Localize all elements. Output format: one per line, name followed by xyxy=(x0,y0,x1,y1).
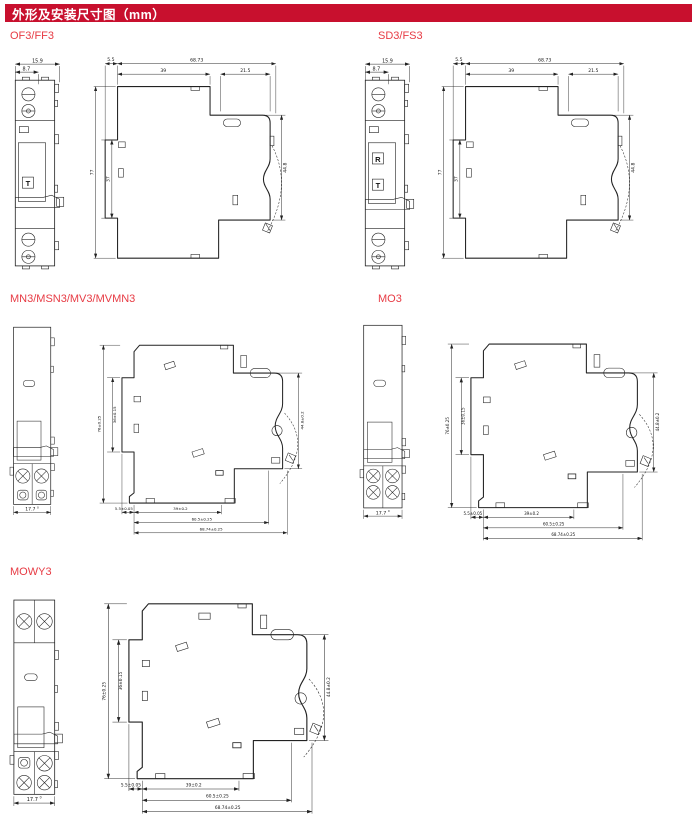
dim-mid-depth: 60.5±0.25 xyxy=(206,794,229,800)
front-lever xyxy=(364,448,410,459)
front-terminals-top xyxy=(14,600,55,643)
section-title-mo3: MO3 xyxy=(378,293,402,305)
front-screws-top xyxy=(372,88,385,118)
figure-sd3fs3: SD3/FS3 15.9 8.7 R T xyxy=(360,30,697,288)
dim-rail-height: 37 xyxy=(453,176,459,182)
side-details xyxy=(119,87,282,259)
dim-front-width: 15.9 xyxy=(382,59,393,65)
side-details xyxy=(142,604,323,779)
dim-rail-depth: 5.5±0.05 xyxy=(115,506,134,511)
dim-mid-depth: 60.5±0.25 xyxy=(192,516,213,521)
front-lever xyxy=(14,732,63,744)
side-profile xyxy=(453,87,618,259)
dim-total-depth: 68.74±0.25 xyxy=(551,532,575,537)
front-lever xyxy=(14,446,58,457)
dim-rail-height: 36±0.15 xyxy=(112,406,117,423)
dim-body-depth: 39±0.2 xyxy=(173,506,188,511)
dim-height: 77 xyxy=(438,169,444,175)
side-profile xyxy=(129,604,307,779)
front-terminals-bottom xyxy=(14,752,55,795)
dim-pitch: 17.7 xyxy=(25,507,35,513)
side-details xyxy=(483,344,653,508)
front-latch: T xyxy=(15,127,63,208)
dim-total-depth: 68.73 xyxy=(538,57,551,63)
dim-total-depth: 68.73 xyxy=(190,57,203,63)
section-header-banner: 外形及安装尺寸图（mm） xyxy=(5,4,692,22)
mo3-side-view: 76±0.25 36±0.15 44.8±0.2 5.5±0.05 39±0.2… xyxy=(440,320,676,549)
side-profile xyxy=(471,344,637,508)
dim-pitch-tolerance: 0 xyxy=(388,509,390,513)
dim-rail-height: 37 xyxy=(105,176,111,182)
extension-lines xyxy=(94,66,286,259)
front-screws-top xyxy=(22,88,35,118)
side-profile xyxy=(122,345,283,503)
dim-rail-depth: 5.5±0.05 xyxy=(121,782,141,788)
dim-total-depth: 68.74±0.25 xyxy=(200,526,224,531)
dim-front-height: 44.8±0.2 xyxy=(655,412,660,431)
dim-front-width-inner: 8.7 xyxy=(373,67,381,73)
extension-lines xyxy=(104,604,328,814)
dim-body-depth: 39±0.2 xyxy=(186,782,202,788)
handle-arc xyxy=(267,146,281,232)
mark-t: T xyxy=(376,181,381,190)
page-title: 外形及安装尺寸图（mm） xyxy=(5,4,165,23)
front-latch: R T xyxy=(365,127,413,210)
front-terminals xyxy=(364,466,402,508)
dim-rail-depth: 5.5 xyxy=(455,57,462,63)
section-title-sd3fs3: SD3/FS3 xyxy=(378,30,423,42)
dim-front-width-inner: 8.7 xyxy=(23,67,31,73)
figure-mo3: MO3 17.7 0 xyxy=(360,293,697,555)
dim-height: 76±0.25 xyxy=(97,415,102,432)
mn3-side-view: 76±0.25 36±0.15 44.8±0.2 5.5±0.05 39±0.2… xyxy=(92,322,320,543)
section-title-of3ff3: OF3/FF3 xyxy=(10,30,54,42)
mark-t: T xyxy=(26,179,31,188)
dim-height: 76±0.25 xyxy=(101,682,107,701)
sd3fs3-front-view: 15.9 8.7 R T xyxy=(360,56,417,278)
dim-body-depth: 39±0.2 xyxy=(524,511,539,516)
dim-front-depth: 21.5 xyxy=(240,68,250,74)
dim-rail-height: 36±0.15 xyxy=(461,407,466,425)
dim-front-height: 44.8 xyxy=(282,162,288,172)
mowy3-front-view: 17.7 0 xyxy=(10,592,78,816)
side-profile xyxy=(105,87,270,259)
figure-mowy3: MOWY3 17.7 0 xyxy=(10,566,360,836)
of3ff3-side-view: 5.5 68.73 39 21.5 77 37 44.8 xyxy=(88,54,293,266)
dim-pitch: 17.7 xyxy=(27,797,38,803)
dim-height: 76±0.25 xyxy=(445,417,450,435)
section-title-mn3: MN3/MSN3/MV3/MVMN3 xyxy=(10,293,135,305)
dim-rail-depth: 5.5 xyxy=(107,57,114,63)
dim-rail-height: 36±0.15 xyxy=(118,671,124,690)
front-terminals xyxy=(14,464,51,505)
dim-front-height: 44.8 xyxy=(630,162,636,172)
mo3-front-view: 17.7 0 xyxy=(360,318,424,528)
front-screws-bottom xyxy=(372,233,385,263)
side-details xyxy=(134,345,298,503)
mowy3-side-view: 76±0.25 36±0.15 44.8±0.2 5.5±0.05 39±0.2… xyxy=(96,578,348,823)
extension-lines xyxy=(442,66,634,259)
dim-front-height: 44.8±0.2 xyxy=(326,677,332,697)
dim-front-width: 15.9 xyxy=(32,59,43,65)
sd3fs3-side-view: 5.5 68.73 39 21.5 77 37 44.8 xyxy=(436,54,641,266)
dim-total-depth: 68.74±0.25 xyxy=(215,805,241,811)
dim-body-depth: 39 xyxy=(160,68,166,74)
dim-rail-depth: 5.5±0.05 xyxy=(463,511,482,516)
mark-r: R xyxy=(375,155,381,164)
side-details xyxy=(467,87,630,259)
figure-mn3: MN3/MSN3/MV3/MVMN3 17.7 0 xyxy=(10,293,350,553)
handle-arc xyxy=(615,146,629,232)
front-screws-bottom xyxy=(22,233,35,263)
section-title-mowy3: MOWY3 xyxy=(10,566,52,578)
dim-front-height: 44.8±0.2 xyxy=(300,411,305,430)
dim-pitch: 17.7 xyxy=(376,510,387,516)
dim-front-depth: 21.5 xyxy=(588,68,598,74)
figure-of3ff3: OF3/FF3 15.9 8.7 T xyxy=(10,30,350,288)
dim-pitch-tolerance: 0 xyxy=(37,505,39,509)
dim-body-depth: 39 xyxy=(508,68,514,74)
dim-mid-depth: 60.5±0.25 xyxy=(543,521,565,526)
mn3-front-view: 17.7 0 xyxy=(10,320,72,524)
dim-height: 77 xyxy=(90,169,96,175)
dim-pitch-tolerance: 0 xyxy=(40,796,42,800)
of3ff3-front-view: 15.9 8.7 T xyxy=(10,56,67,278)
